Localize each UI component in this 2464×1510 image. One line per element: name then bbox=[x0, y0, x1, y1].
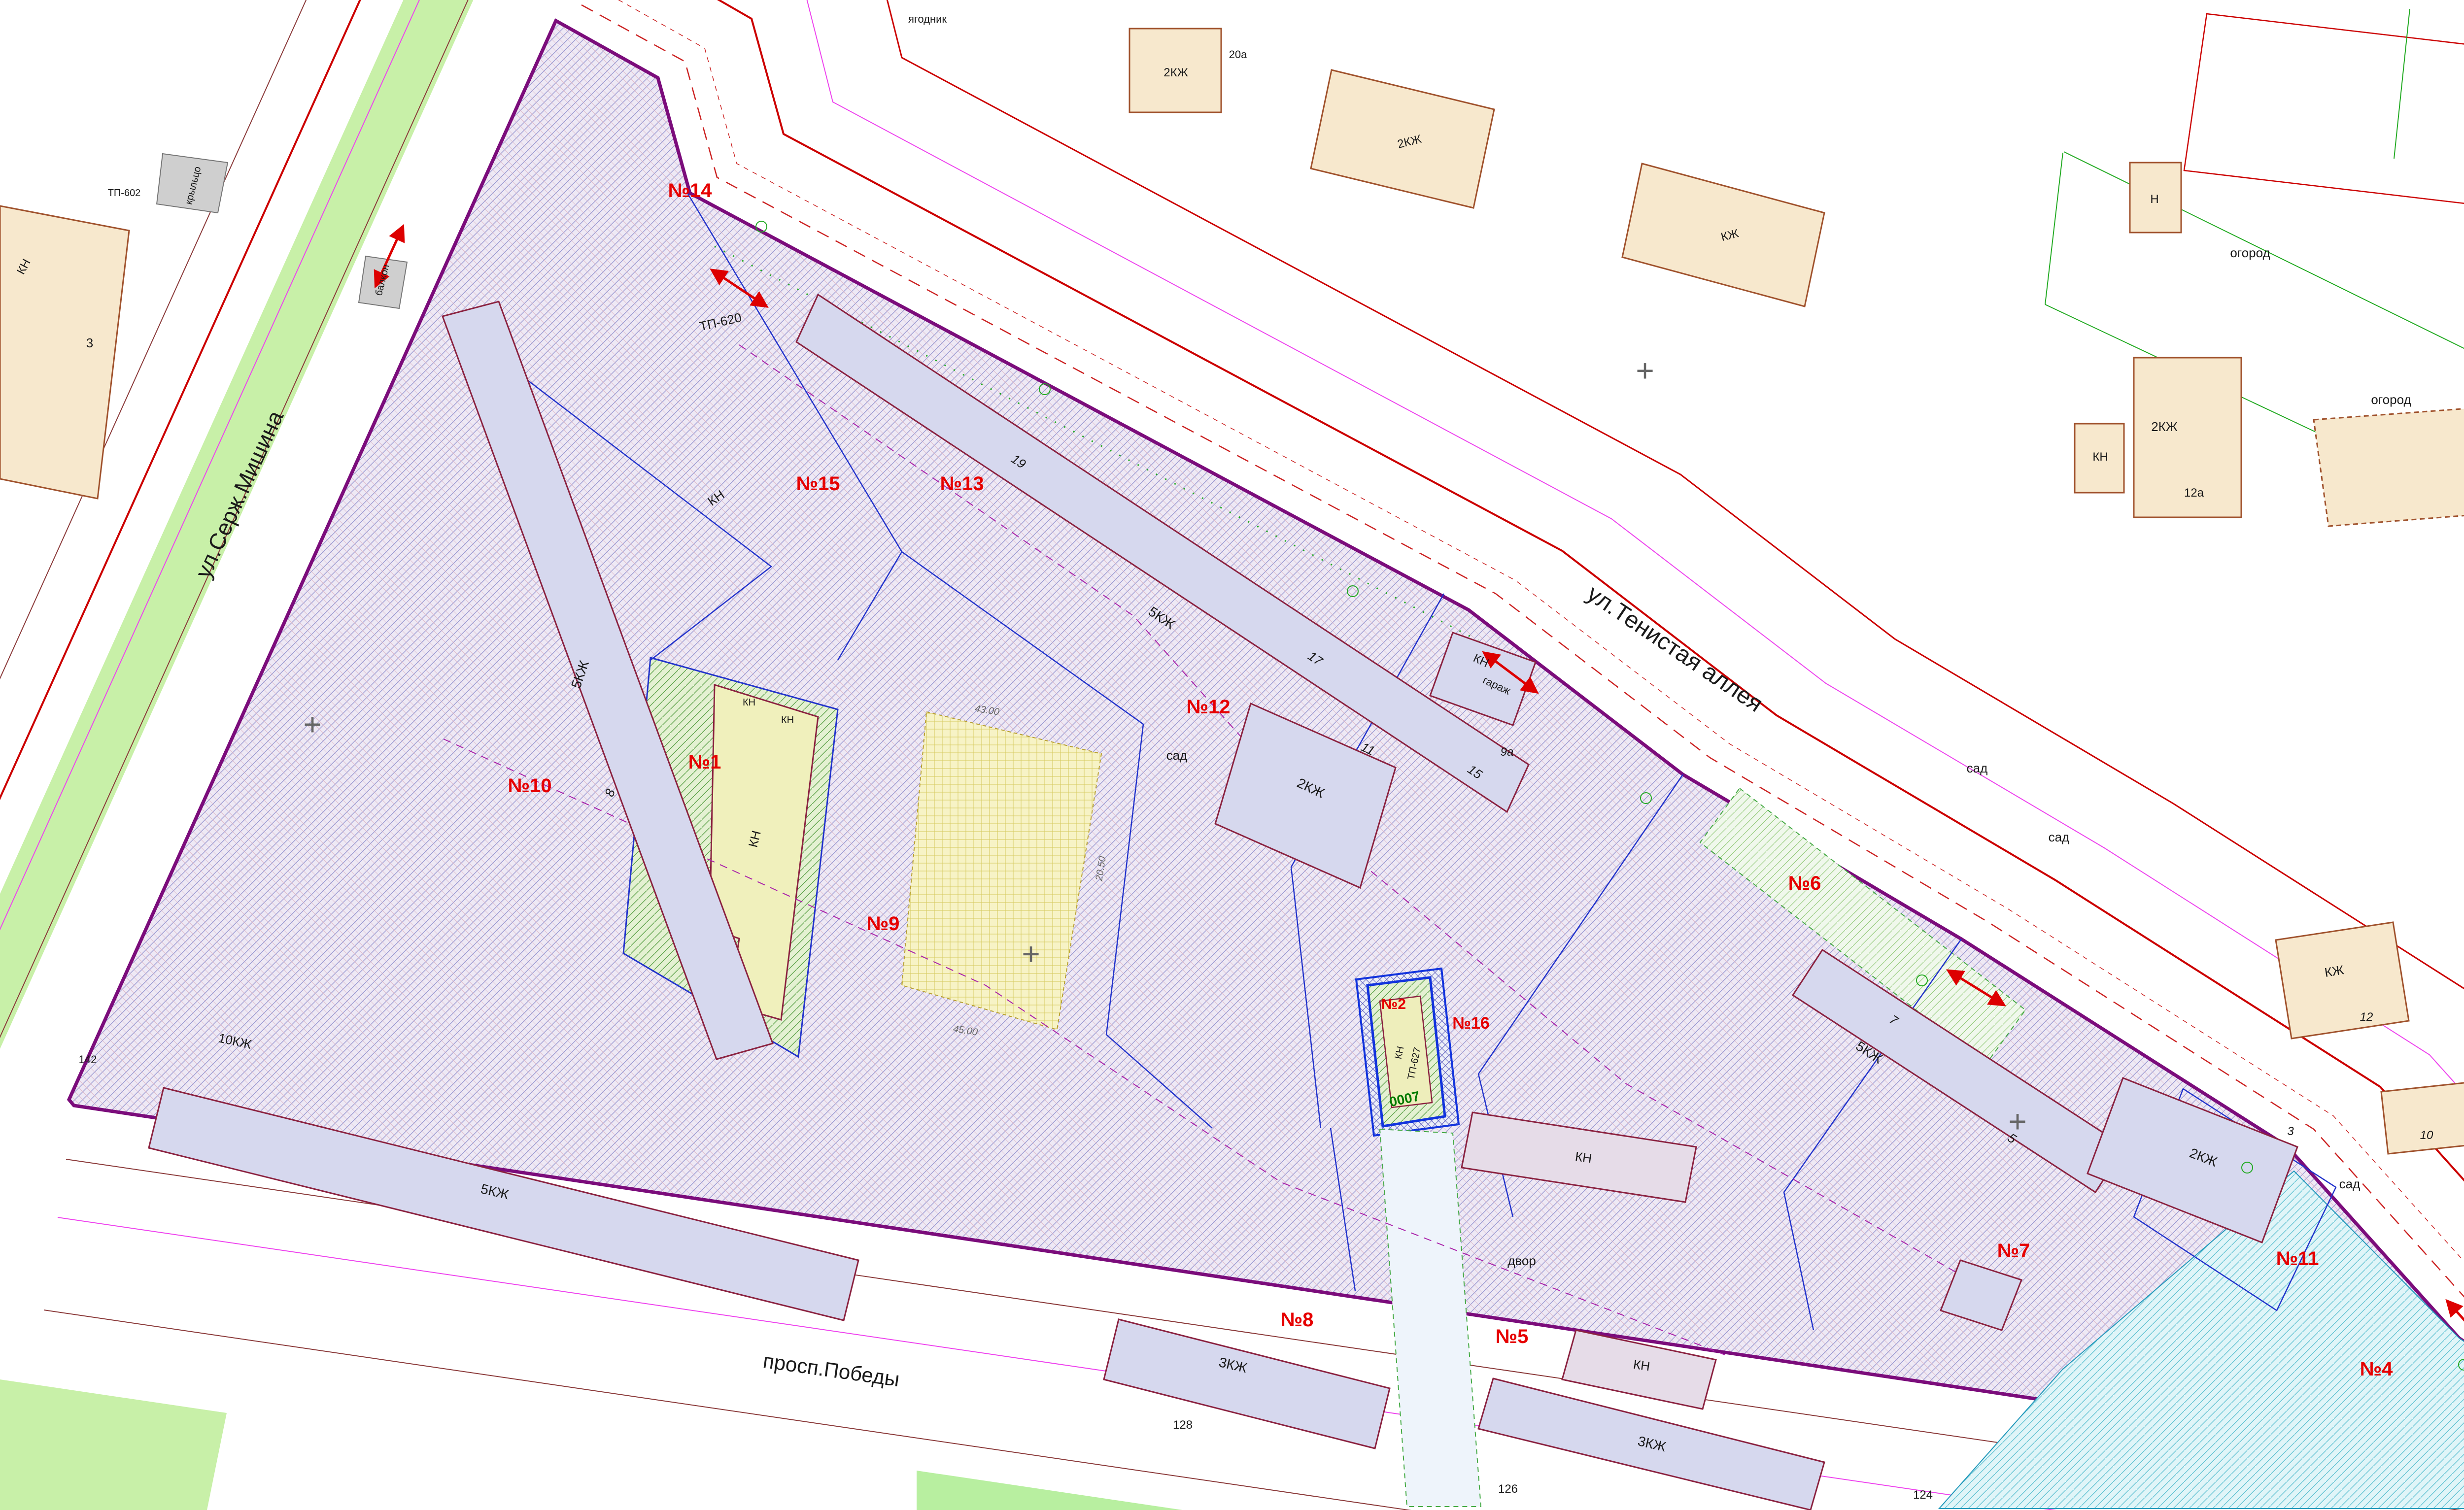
map-label: огород bbox=[2371, 392, 2411, 407]
map-label: КН bbox=[1632, 1357, 1651, 1374]
map-label: №16 bbox=[1452, 1014, 1490, 1033]
map-label: №9 bbox=[867, 913, 900, 935]
map-label: №4 bbox=[2360, 1358, 2394, 1380]
map-label: ул.Тенистая аллея bbox=[1582, 580, 1768, 717]
map-label: №15 bbox=[796, 473, 840, 495]
map-label: №13 bbox=[940, 473, 984, 495]
map-label: сад bbox=[1967, 761, 1988, 775]
map-label: №8 bbox=[1281, 1309, 1314, 1331]
map-label: КН bbox=[781, 715, 794, 726]
map-label: + bbox=[1022, 936, 1040, 972]
map-label: 12а bbox=[2184, 486, 2204, 500]
cadastral-plan-page: ул.Серж.Мишинаул.Тенистая аллеяпросп.Поб… bbox=[0, 0, 2464, 1510]
map-label: Н bbox=[2150, 193, 2158, 206]
map-label: 2КЖ bbox=[2151, 419, 2178, 434]
map-label: + bbox=[2008, 1104, 2026, 1139]
map-label: 126 bbox=[1498, 1482, 1518, 1496]
map-label: 3 bbox=[2287, 1125, 2294, 1138]
map-label: + bbox=[1636, 353, 1654, 388]
map-label: КН bbox=[1574, 1149, 1593, 1166]
map-label: 10 bbox=[2420, 1129, 2433, 1142]
map-canvas: ул.Серж.Мишинаул.Тенистая аллеяпросп.Поб… bbox=[0, 0, 2464, 1510]
map-label: №2 bbox=[1381, 996, 1406, 1012]
red-contours bbox=[2184, 14, 2464, 215]
map-label: 128 bbox=[1173, 1418, 1193, 1432]
map-label: 124 bbox=[1913, 1488, 1933, 1502]
map-label: №10 bbox=[508, 775, 551, 797]
map-label: КЖ bbox=[2324, 962, 2345, 980]
map-label: 142 bbox=[79, 1053, 97, 1066]
map-label: 9а bbox=[1501, 745, 1514, 759]
map-label: 3 bbox=[86, 336, 93, 350]
map-label: просп.Победы bbox=[762, 1349, 901, 1391]
map-label: огород bbox=[2230, 245, 2270, 260]
map-label: №7 bbox=[1997, 1240, 2030, 1262]
map-label: №11 bbox=[2276, 1248, 2319, 1270]
map-label: сад bbox=[2339, 1176, 2361, 1191]
map-label: КН bbox=[743, 697, 755, 708]
map-label: двор bbox=[1507, 1253, 1536, 1268]
map-label: сад bbox=[1166, 748, 1188, 763]
map-label: КН bbox=[2092, 450, 2108, 464]
map-label: №1 bbox=[688, 751, 721, 773]
map-label: №12 bbox=[1186, 696, 1230, 718]
map-label: ТП-602 bbox=[108, 188, 141, 199]
map-label: №14 bbox=[668, 180, 712, 201]
map-label: 12 bbox=[2360, 1010, 2373, 1024]
garden-lines bbox=[2045, 9, 2464, 638]
map-label: ягодник bbox=[908, 13, 947, 25]
map-label: 20а bbox=[1229, 48, 1247, 61]
map-label: №5 bbox=[1496, 1326, 1529, 1347]
map-label: + bbox=[303, 706, 321, 742]
map-label: 2КЖ bbox=[1164, 66, 1188, 79]
map-label: сад bbox=[2049, 830, 2070, 844]
map-label: №6 bbox=[1788, 872, 1821, 894]
